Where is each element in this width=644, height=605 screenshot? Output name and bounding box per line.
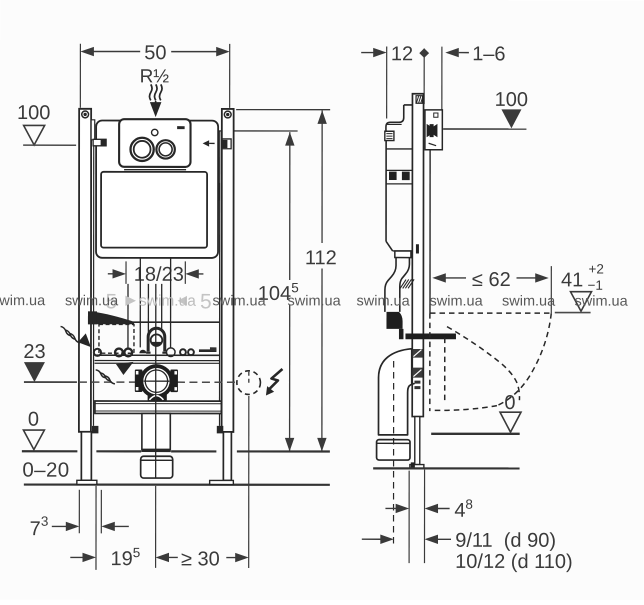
svg-text:≤ 62: ≤ 62: [472, 269, 511, 291]
svg-text:23: 23: [23, 341, 45, 363]
svg-text:5: 5: [200, 290, 212, 313]
svg-text:7: 7: [30, 518, 41, 540]
svg-text:100: 100: [17, 102, 50, 124]
svg-text:100: 100: [495, 89, 528, 111]
svg-text:9/11 (d 90): 9/11 (d 90): [455, 530, 556, 552]
svg-text:swim.ua: swim.ua: [139, 293, 196, 310]
svg-text:R½: R½: [140, 66, 170, 87]
svg-text:50: 50: [144, 42, 166, 64]
svg-text:8: 8: [465, 497, 473, 512]
svg-text:+2: +2: [589, 262, 604, 277]
svg-text:0–20: 0–20: [22, 459, 69, 482]
svg-text:5: 5: [133, 545, 141, 560]
svg-text:18/23: 18/23: [134, 264, 184, 286]
svg-text:swim.ua: swim.ua: [0, 293, 46, 309]
svg-text:swim.ua: swim.ua: [429, 293, 483, 309]
svg-text:10/12 (d 110): 10/12 (d 110): [455, 551, 573, 573]
svg-text:swim.ua: swim.ua: [574, 294, 628, 310]
svg-text:swim.ua: swim.ua: [65, 293, 119, 309]
svg-text:19: 19: [110, 548, 132, 570]
svg-text:41: 41: [561, 269, 583, 291]
svg-text:swim.ua: swim.ua: [212, 293, 266, 309]
svg-text:3: 3: [41, 514, 49, 529]
svg-text:112: 112: [305, 247, 337, 269]
svg-text:0: 0: [28, 409, 39, 431]
svg-text:swim.ua: swim.ua: [356, 293, 410, 309]
svg-text:≥ 30: ≥ 30: [181, 548, 220, 570]
svg-text:12: 12: [391, 43, 413, 65]
svg-text:−1: −1: [588, 278, 603, 293]
svg-text:1–6: 1–6: [472, 43, 505, 65]
svg-text:swim.ua: swim.ua: [287, 293, 341, 309]
svg-text:4: 4: [454, 500, 465, 522]
svg-text:swim.ua: swim.ua: [502, 294, 556, 310]
svg-text:0: 0: [504, 392, 515, 414]
